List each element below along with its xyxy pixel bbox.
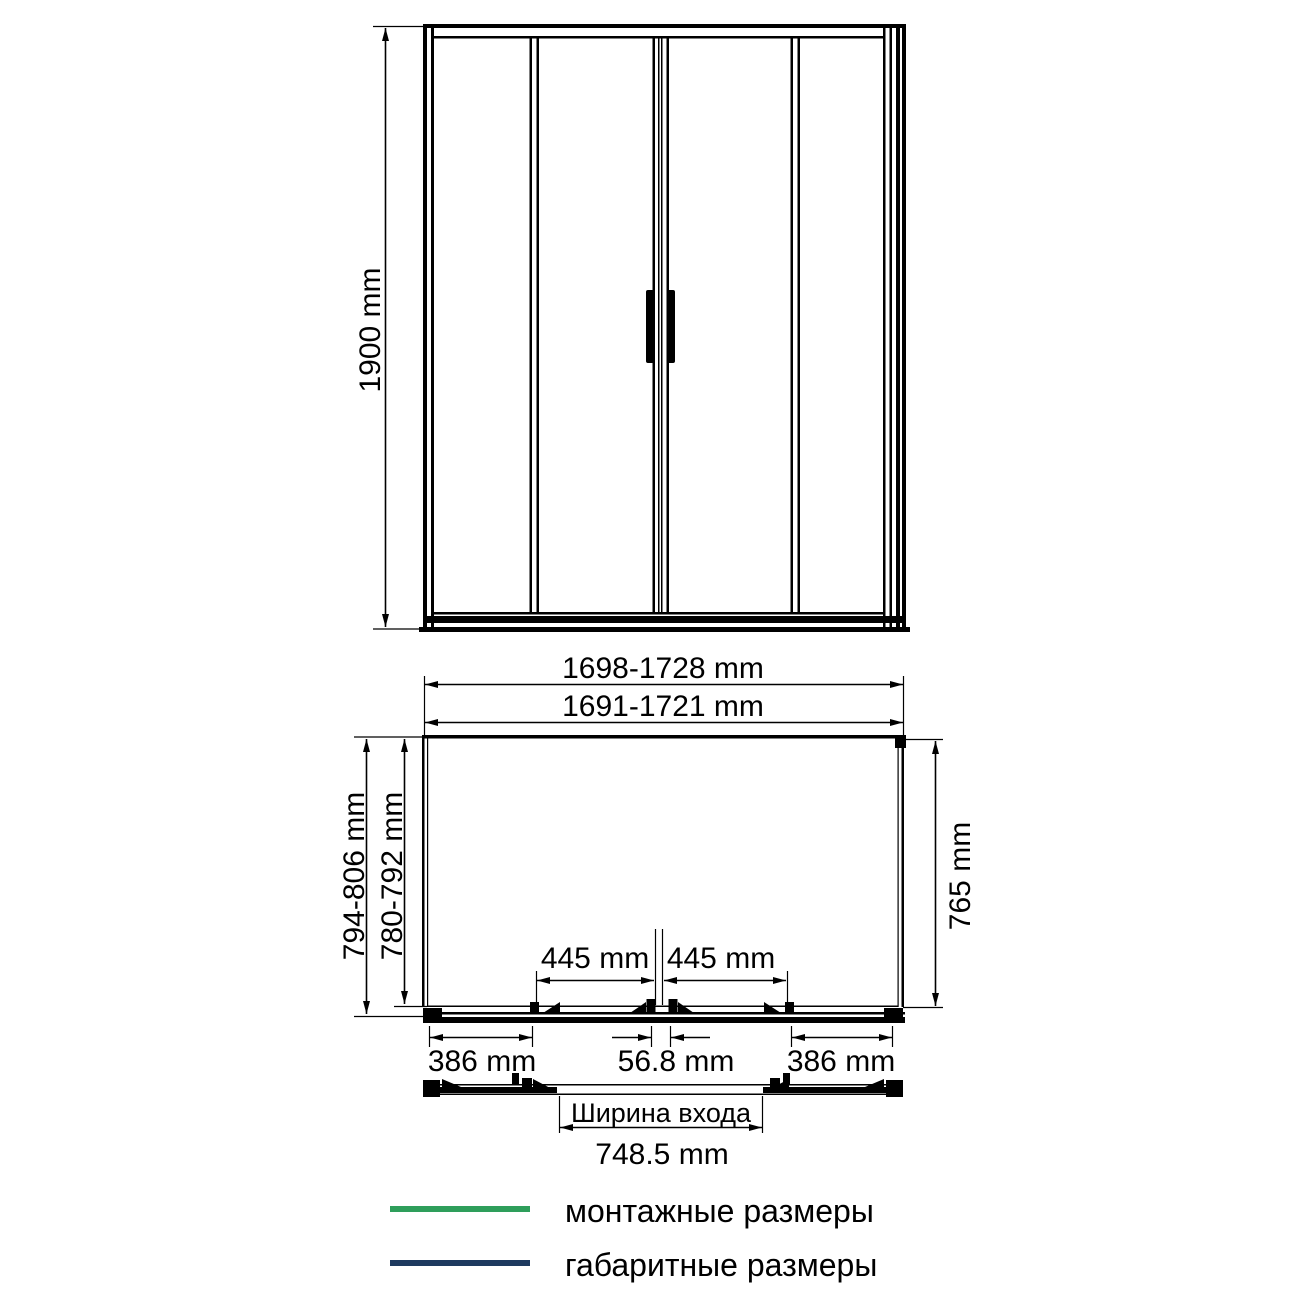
wall-profile-block — [895, 735, 906, 748]
left-side-panel-label: 386 mm — [428, 1045, 536, 1078]
panel-offset-dimensions: 386 mm 56.8 mm 386 mm — [428, 1026, 895, 1078]
shower-door-installation-diagram: 1900 mm — [0, 0, 1300, 1300]
legend-mounting-label: монтажные размеры — [565, 1193, 874, 1229]
plan-view-drawing: 1698-1728 mm 1691-1721 mm 794-806 mm 780… — [338, 652, 977, 1078]
left-door-width-label: 445 mm — [541, 942, 649, 975]
plan-view-outline — [422, 735, 906, 1007]
entrance-caption: Ширина входа — [571, 1098, 752, 1128]
height-dimension: 1900 mm — [354, 27, 423, 630]
front-view-panel-dividers — [530, 38, 801, 614]
plan-inner-depth-dimension: 765 mm — [903, 740, 977, 1008]
door-handle-left — [646, 290, 654, 363]
inner-depth-label: 765 mm — [944, 822, 977, 930]
front-view-drawing: 1900 mm — [354, 24, 910, 632]
diagram-canvas: 1900 mm — [0, 0, 1300, 1300]
plan-view-track — [423, 999, 905, 1023]
right-door-width-label: 445 mm — [667, 942, 775, 975]
mounting-depth-label: 780-792 mm — [376, 792, 409, 960]
plan-depth-dimensions-left: 794-806 mm 780-792 mm — [338, 737, 427, 1017]
entrance-width-label: 748.5 mm — [595, 1138, 728, 1171]
overall-width-label: 1698-1728 mm — [562, 652, 764, 685]
legend: монтажные размеры габаритные размеры — [390, 1193, 877, 1283]
entrance-width-drawing: Ширина входа 748.5 mm — [423, 1073, 903, 1171]
mounting-width-label: 1691-1721 mm — [562, 690, 764, 723]
door-width-dimensions: 445 mm 445 mm — [537, 929, 788, 1005]
front-view-frame — [419, 24, 910, 632]
legend-overall-label: габаритные размеры — [565, 1247, 877, 1283]
overall-depth-label: 794-806 mm — [338, 792, 371, 960]
entrance-width-dimension: Ширина входа 748.5 mm — [560, 1096, 763, 1171]
legend-mounting-swatch — [390, 1206, 530, 1212]
door-handle-right — [667, 290, 675, 363]
plan-width-dimensions: 1698-1728 mm 1691-1721 mm — [425, 652, 904, 737]
right-side-panel-label: 386 mm — [787, 1045, 895, 1078]
center-overlap-label: 56.8 mm — [618, 1045, 735, 1078]
height-dimension-label: 1900 mm — [354, 267, 387, 392]
legend-overall-swatch — [390, 1260, 530, 1266]
